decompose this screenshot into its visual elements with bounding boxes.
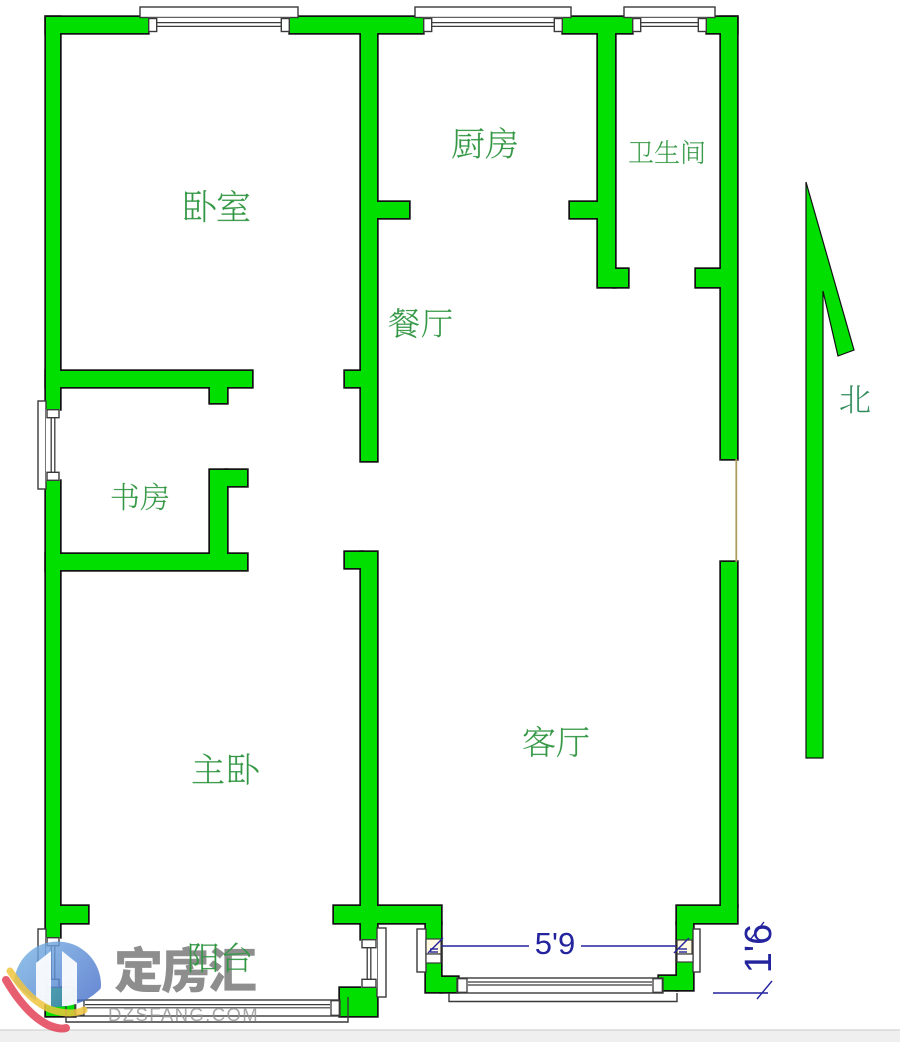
svg-text:DZSFANG.COM: DZSFANG.COM [108,1004,259,1025]
svg-text:1'6: 1'6 [738,924,780,974]
svg-text:5'9: 5'9 [535,926,575,961]
